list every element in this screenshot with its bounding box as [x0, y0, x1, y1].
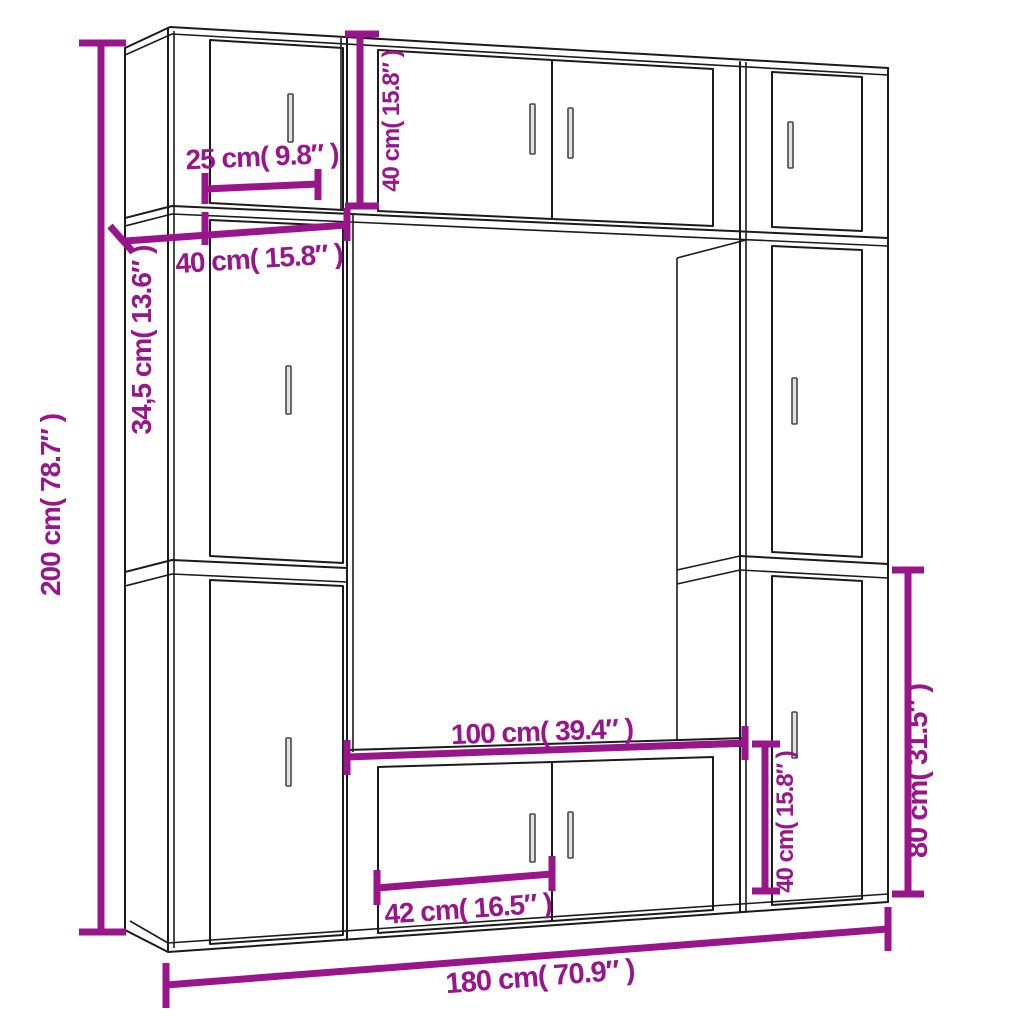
niche-interior: [677, 240, 746, 740]
dimension-tv-stand-height: 40 cm( 15.8″ ): [752, 744, 799, 893]
cabinet-top-center: [378, 50, 713, 226]
door-handle: [792, 378, 797, 424]
dimension-line: [205, 184, 318, 189]
dimension-line: [125, 225, 347, 241]
cabinet-top-right: [772, 72, 862, 231]
dimension-label: 40 cm( 15.8″ ): [378, 50, 405, 192]
dimension-annotations: 200 cm( 78.7″ ) 25 cm( 9.8″ ) 40 cm( 15.…: [35, 34, 934, 1008]
dimension-total-height: 200 cm( 78.7″ ): [35, 43, 126, 932]
diagram-canvas: 200 cm( 78.7″ ) 25 cm( 9.8″ ) 40 cm( 15.…: [0, 0, 1024, 1024]
dimension-side-column-depth: 34,5 cm( 13.6″ ): [126, 246, 157, 435]
door-handle: [286, 738, 291, 786]
dimension-label: 100 cm( 39.4″ ): [450, 713, 633, 750]
dimension-tv-stand-door-width: 42 cm( 16.5″ ): [377, 856, 553, 930]
door-handle: [286, 366, 291, 414]
dimension-label: 34,5 cm( 13.6″ ): [126, 246, 157, 435]
dimension-label: 200 cm( 78.7″ ): [35, 414, 66, 596]
door-handle: [530, 814, 535, 862]
door-handle: [788, 122, 793, 168]
dimension-label: 40 cm( 15.8″ ): [772, 751, 799, 893]
dimension-line: [377, 874, 552, 888]
cabinet-bottom-left: [210, 580, 343, 944]
cabinet-middle-right: [772, 246, 862, 557]
door-handle: [568, 108, 573, 158]
dimension-lower-cabinet-height: 80 cm( 31.5″ ): [892, 570, 934, 896]
dimension-label: 80 cm( 31.5″ ): [902, 684, 934, 858]
dimension-top-cabinet-depth: 25 cm( 9.8″ ): [185, 138, 339, 204]
dimension-label: 40 cm( 15.8″ ): [174, 238, 343, 279]
dimension-top-row-height: 40 cm( 15.8″ ): [345, 34, 405, 208]
door-handle: [792, 712, 797, 758]
furniture-dimension-diagram: 200 cm( 78.7″ ) 25 cm( 9.8″ ) 40 cm( 15.…: [0, 0, 1024, 1024]
door-handle: [568, 812, 573, 858]
door-handle: [288, 94, 293, 142]
door-handle: [530, 104, 535, 154]
